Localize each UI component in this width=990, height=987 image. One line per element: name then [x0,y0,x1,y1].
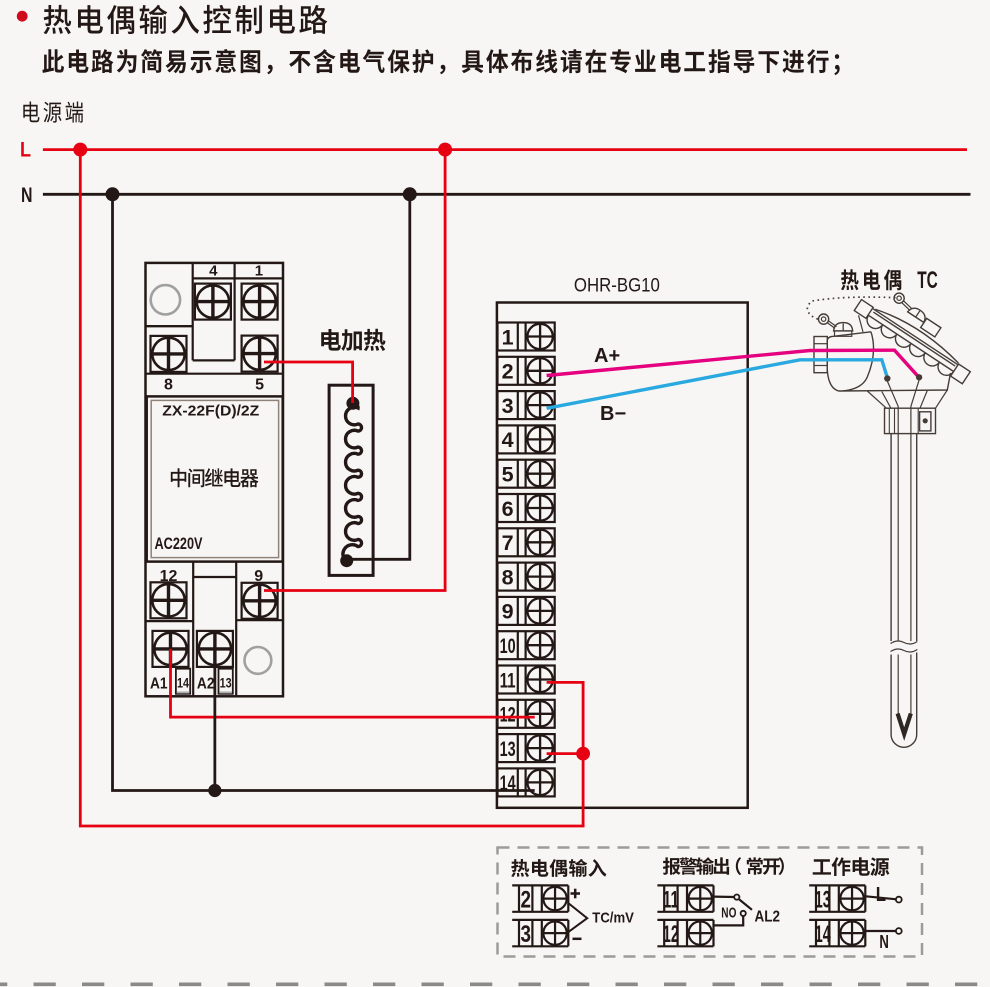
svg-text:AL2: AL2 [755,909,781,926]
svg-text:AC220V: AC220V [155,534,203,553]
svg-text:A+: A+ [594,345,620,367]
svg-text:L: L [20,138,31,162]
svg-text:TC/mV: TC/mV [592,910,634,927]
svg-text:14: 14 [815,921,831,948]
svg-text:1: 1 [502,325,514,349]
svg-text:14: 14 [177,674,189,690]
svg-text:4: 4 [209,263,218,280]
svg-text:8: 8 [164,376,173,393]
svg-text:9: 9 [502,600,514,624]
svg-text:N: N [879,931,889,952]
svg-text:5: 5 [502,463,514,487]
svg-text:N: N [21,183,33,207]
svg-text:13: 13 [220,674,232,690]
svg-text:NO: NO [721,905,736,922]
svg-text:11: 11 [663,887,679,914]
svg-text:3: 3 [520,921,531,948]
svg-text:A1: A1 [150,676,168,693]
svg-text:7: 7 [502,531,514,555]
svg-text:5: 5 [255,376,264,393]
svg-text:OHR-BG10: OHR-BG10 [574,276,660,297]
svg-text:3: 3 [502,394,514,418]
svg-text:6: 6 [502,497,514,521]
svg-text:10: 10 [500,634,516,658]
svg-text:L: L [876,884,886,906]
svg-text:2: 2 [502,360,514,384]
svg-text:2: 2 [520,887,531,914]
svg-text:12: 12 [663,921,679,948]
svg-text:13: 13 [500,737,516,761]
svg-text:8: 8 [502,565,514,589]
svg-text:13: 13 [815,887,831,914]
svg-text:1: 1 [255,263,263,280]
svg-text:A2: A2 [197,676,215,693]
svg-text:B−: B− [600,403,626,425]
svg-text:TC: TC [917,267,938,294]
svg-text:ZX-22F(D)/2Z: ZX-22F(D)/2Z [162,403,259,420]
svg-text:4: 4 [502,428,514,452]
svg-text:11: 11 [500,668,516,692]
svg-text:12: 12 [500,703,516,727]
